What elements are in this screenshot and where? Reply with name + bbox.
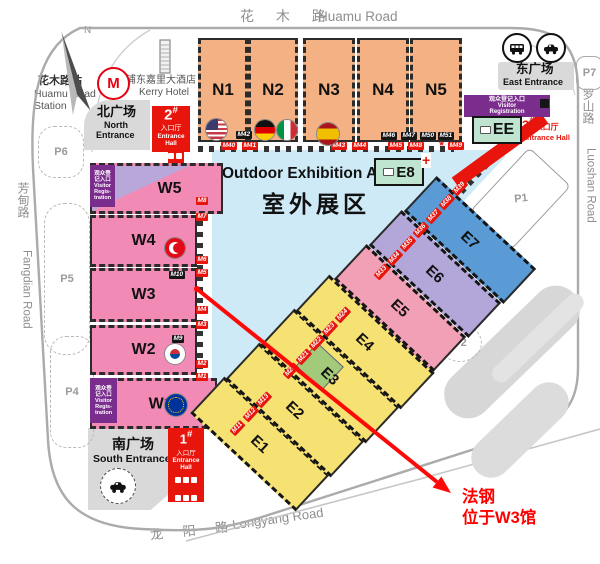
hall-w3-label: W3 — [132, 286, 156, 304]
hall-n4-label: N4 — [372, 80, 394, 100]
parking-p7: P7 — [576, 56, 600, 90]
entrance-1-en2: Hall — [180, 464, 192, 471]
gate-m9: M9 — [172, 335, 184, 343]
gate-m40: M40 — [221, 142, 237, 150]
south-plaza-en: South Entrance — [93, 454, 171, 465]
entrance-2-mark: # — [173, 105, 178, 116]
hall-e8: E8 — [374, 158, 424, 186]
outdoor-area-label-cn: 室外展区 — [262, 192, 370, 217]
spain-flag-icon — [316, 122, 340, 146]
gate-m41: M41 — [242, 142, 258, 150]
entrance-1-num: 1 — [180, 431, 187, 446]
hall-n5: N5 — [410, 38, 462, 142]
entrance-3-en: Entrance Hall — [522, 134, 570, 142]
us-flag-icon — [205, 118, 228, 141]
gate-m4: M4 — [196, 306, 208, 314]
entrance-hall-3: 3#入口厅 Entrance Hall — [522, 116, 570, 142]
entrance-1-en1: Entrance — [173, 457, 200, 464]
hall-e7-label: E7 — [457, 228, 482, 253]
entrance-hall-1: 1# 入口厅 Entrance Hall — [168, 428, 204, 502]
north-plaza-cn: 北广场 — [97, 105, 136, 119]
hall-e6-label: E6 — [422, 262, 447, 287]
entrance-2-num: 2 — [164, 106, 172, 123]
hall-n5-label: N5 — [425, 80, 447, 100]
reg-line: Registration — [489, 109, 524, 115]
first-aid-cross-icon: + — [421, 153, 431, 168]
hall-n3-label: N3 — [318, 80, 340, 100]
gate-m3: M3 — [196, 321, 208, 329]
gate-m45: M45 — [388, 142, 404, 150]
east-plaza-en: East Entrance — [503, 78, 563, 88]
hall-n4: N4 — [357, 38, 409, 142]
gate-m8: M8 — [196, 197, 208, 205]
hall-e4-label: E4 — [352, 330, 377, 355]
entrance-1-mark: # — [187, 429, 192, 440]
parking-p1-label: P1 — [513, 192, 528, 206]
gate-m1: M1 — [196, 373, 208, 381]
hall-e8-label: E8 — [396, 164, 414, 181]
germany-flag-icon — [254, 119, 276, 141]
taxi-icon — [100, 468, 136, 504]
visitor-registration-w5: 观众登 记入口 Visitor Regis- tration — [90, 165, 115, 207]
parking-p7-label: P7 — [583, 67, 596, 79]
east-plaza-cn: 东广场 — [516, 63, 554, 77]
metro-logo-icon: M — [97, 67, 130, 100]
entrance-3-cn: 入口厅 — [535, 122, 559, 131]
hall-ee: EE — [472, 116, 522, 144]
exhibition-center-map: N 花 木 路 Huamu Road 罗山路 Luoshan Road 芳甸路 … — [0, 0, 600, 564]
annotation-text: 法钢 位于W3馆 — [462, 487, 536, 528]
red-star-icon: ★ — [438, 140, 445, 149]
camera-icon — [540, 99, 549, 108]
reg-line: tration — [95, 410, 112, 416]
entrance-1-icons — [174, 489, 198, 507]
annotation-line1: 法钢 — [462, 487, 536, 508]
gate-m48: M48 — [408, 142, 424, 150]
entrance-2-cn: 入口厅 — [161, 123, 182, 133]
parking-p5-label: P5 — [60, 273, 73, 285]
gate-m46: M46 — [381, 132, 397, 140]
hall-n2-label: N2 — [262, 80, 284, 100]
parking-p5: P5 — [44, 203, 90, 355]
gate-m49: M49 — [448, 142, 464, 150]
hall-e2-label: E2 — [282, 398, 307, 423]
car-icon — [536, 33, 566, 63]
parking-p6: P6 — [38, 126, 84, 178]
hall-w2-label: W2 — [132, 341, 156, 359]
italy-flag-icon — [276, 119, 298, 141]
hall-e1-label: E1 — [247, 432, 272, 457]
north-plaza-en2: Entrance — [96, 131, 135, 141]
forklift-icon — [383, 168, 394, 176]
gate-m47: M47 — [401, 132, 417, 140]
gate-m50: M50 — [420, 132, 436, 140]
entrance-2-en: Entrance Hall — [152, 133, 190, 147]
parking-p4-label: P4 — [65, 386, 78, 398]
gate-m44: M44 — [352, 142, 368, 150]
eu-flag-icon — [164, 393, 188, 417]
entrance-2-icons — [159, 147, 183, 165]
hall-w4-label: W4 — [132, 232, 156, 250]
south-plaza-cn: 南广场 — [112, 437, 154, 452]
gate-m10: M10 — [169, 271, 185, 279]
entrance-2-num-row: 2# — [164, 106, 178, 123]
forklift-icon — [480, 126, 491, 134]
gate-m6: M6 — [196, 256, 208, 264]
bus-icon — [502, 33, 532, 63]
entrance-1-cn: 入口厅 — [176, 447, 196, 457]
gate-m42: M42 — [236, 131, 252, 139]
parking-p6-label: P6 — [54, 146, 67, 158]
entrance-hall-2: 2# 入口厅 Entrance Hall — [152, 106, 190, 152]
visitor-registration-east: 观众登记入口 Visitor Registration — [464, 95, 550, 117]
hall-e5-label: E5 — [387, 296, 412, 321]
turkey-flag-icon — [164, 237, 186, 259]
south-korea-flag-icon — [164, 343, 186, 365]
annotation-line2: 位于W3馆 — [462, 508, 536, 529]
gate-m2: M2 — [196, 360, 208, 368]
entrance-1-num-row: 1# — [180, 430, 193, 447]
hall-ee-label: EE — [493, 121, 514, 139]
visitor-registration-w1: 观众登 记入口 Visitor Regis- tration — [90, 378, 117, 423]
hall-w5-label: W5 — [158, 180, 182, 198]
reg-line: tration — [94, 195, 111, 201]
gate-m5: M5 — [196, 269, 208, 277]
hotel-building-icon — [157, 38, 173, 76]
entrance-1-icons — [174, 471, 198, 489]
hall-n1-label: N1 — [212, 80, 234, 100]
gate-m7: M7 — [196, 213, 208, 221]
